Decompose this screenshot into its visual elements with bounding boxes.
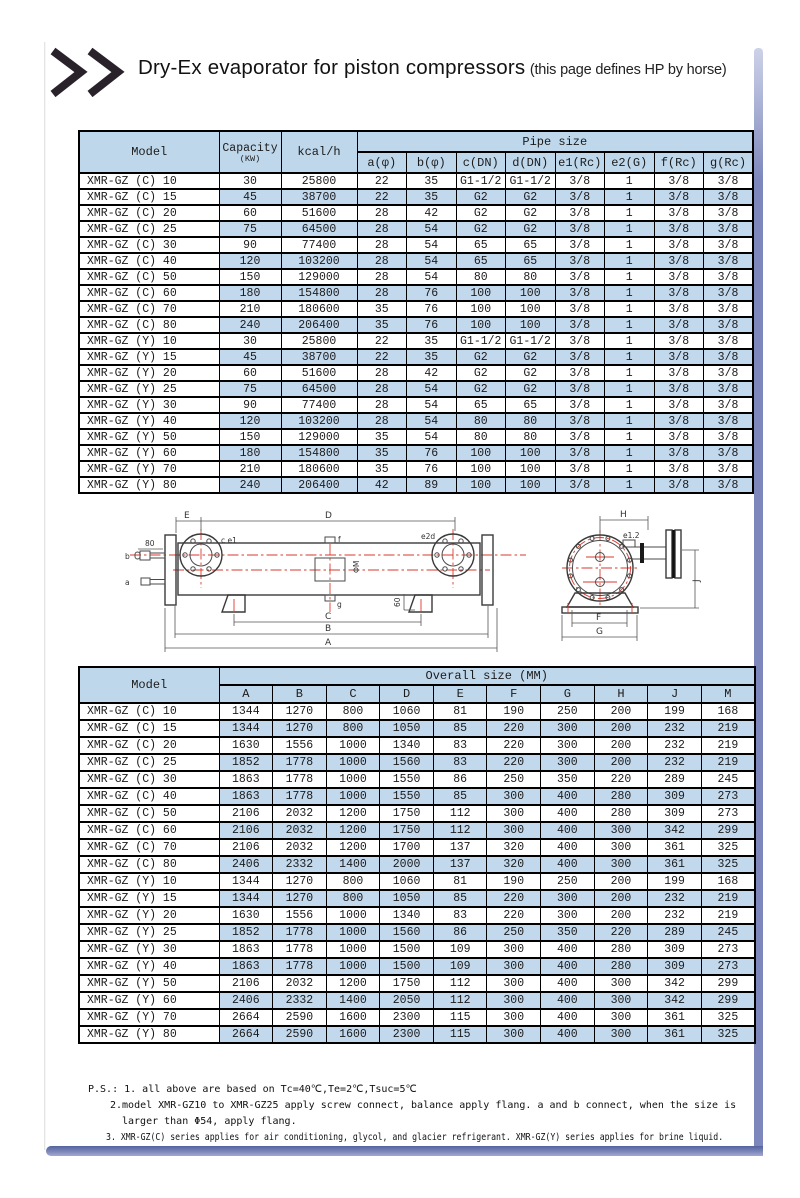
value-cell: 42 xyxy=(407,365,457,381)
value-cell: 325 xyxy=(701,1026,755,1043)
end-view-drawing: H e1.2 J F G xyxy=(562,510,702,641)
value-cell: 100 xyxy=(456,445,506,461)
pipe-size-table: Model Capacity (KW) kcal/h Pipe size a(φ… xyxy=(78,130,754,494)
value-cell: 3/8 xyxy=(704,253,754,269)
value-cell: 1270 xyxy=(273,720,327,737)
value-cell: 320 xyxy=(487,839,541,856)
value-cell: G2 xyxy=(456,365,506,381)
footnote-line-3: larger than Φ54, apply flang. xyxy=(88,1114,800,1130)
value-cell: 112 xyxy=(433,992,487,1009)
model-cell: XMR-GZ (Y) 10 xyxy=(79,333,219,349)
value-cell: 112 xyxy=(433,975,487,992)
value-cell: 220 xyxy=(594,771,648,788)
column-header: A xyxy=(219,685,273,703)
side-view-drawing: E D 80 b a c e1 e2d f g ΦM 60 C B A xyxy=(125,511,526,652)
value-cell: 400 xyxy=(541,1009,595,1026)
value-cell: 30 xyxy=(219,333,281,349)
value-cell: 22 xyxy=(357,189,407,205)
value-cell: 250 xyxy=(541,703,595,720)
value-cell: 200 xyxy=(594,754,648,771)
value-cell: 250 xyxy=(487,924,541,941)
model-cell: XMR-GZ (Y) 20 xyxy=(79,907,219,924)
value-cell: 154800 xyxy=(281,285,357,301)
value-cell: 38700 xyxy=(281,349,357,365)
column-header: E xyxy=(433,685,487,703)
value-cell: 400 xyxy=(541,839,595,856)
value-cell: 54 xyxy=(407,397,457,413)
value-cell: 3/8 xyxy=(555,253,605,269)
model-cell: XMR-GZ (Y) 50 xyxy=(79,429,219,445)
value-cell: 76 xyxy=(407,461,457,477)
value-cell: 232 xyxy=(648,737,702,754)
value-cell: 35 xyxy=(407,333,457,349)
value-cell: 28 xyxy=(357,285,407,301)
dim-label-A: A xyxy=(325,638,332,648)
value-cell: 35 xyxy=(407,173,457,189)
value-cell: 35 xyxy=(357,445,407,461)
pipe-label-a: a xyxy=(125,578,130,587)
value-cell: 1 xyxy=(605,189,655,205)
value-cell: 220 xyxy=(487,890,541,907)
value-cell: 1 xyxy=(605,221,655,237)
value-cell: 3/8 xyxy=(654,429,704,445)
model-cell: XMR-GZ (C) 80 xyxy=(79,856,219,873)
value-cell: 25800 xyxy=(281,333,357,349)
catalog-page: Dry-Ex evaporator for piston compressors… xyxy=(0,0,800,1198)
value-cell: 35 xyxy=(357,461,407,477)
dim-label-E: E xyxy=(184,511,190,521)
value-cell: 240 xyxy=(219,477,281,493)
value-cell: 3/8 xyxy=(555,189,605,205)
value-cell: 2590 xyxy=(273,1009,327,1026)
model-cell: XMR-GZ (Y) 70 xyxy=(79,1009,219,1026)
value-cell: 100 xyxy=(506,285,556,301)
value-cell: 3/8 xyxy=(555,237,605,253)
value-cell: 1000 xyxy=(326,771,380,788)
table-row: XMR-GZ (Y) 50150129000355480803/813/83/8 xyxy=(79,429,753,445)
value-cell: 2106 xyxy=(219,805,273,822)
model-cell: XMR-GZ (C) 20 xyxy=(79,737,219,754)
value-cell: 210 xyxy=(219,301,281,317)
value-cell: 2664 xyxy=(219,1026,273,1043)
value-cell: 1200 xyxy=(326,975,380,992)
model-cell: XMR-GZ (C) 20 xyxy=(79,205,219,221)
value-cell: 3/8 xyxy=(704,445,754,461)
table-row: XMR-GZ (Y) 40186317781000150010930040028… xyxy=(79,958,755,975)
value-cell: 1270 xyxy=(273,890,327,907)
value-cell: 309 xyxy=(648,788,702,805)
value-cell: G2 xyxy=(506,189,556,205)
table-row: XMR-GZ (Y) 70266425901600230011530040030… xyxy=(79,1009,755,1026)
table-row: XMR-GZ (Y) 309077400285465653/813/83/8 xyxy=(79,397,753,413)
value-cell: 35 xyxy=(357,301,407,317)
table-row: XMR-GZ (C) 70210620321200170013732040030… xyxy=(79,839,755,856)
value-cell: 45 xyxy=(219,189,281,205)
model-cell: XMR-GZ (C) 60 xyxy=(79,285,219,301)
column-header: g(Rc) xyxy=(704,152,754,173)
model-cell: XMR-GZ (C) 60 xyxy=(79,822,219,839)
value-cell: 1050 xyxy=(380,720,434,737)
value-cell: 1 xyxy=(605,285,655,301)
value-cell: 1200 xyxy=(326,805,380,822)
value-cell: G1-1/2 xyxy=(456,173,506,189)
value-cell: 3/8 xyxy=(654,253,704,269)
value-cell: 3/8 xyxy=(704,301,754,317)
value-cell: 3/8 xyxy=(704,461,754,477)
footnote-line-4: 3. XMR-GZ(C) series applies for air cond… xyxy=(88,1130,723,1146)
value-cell: 2406 xyxy=(219,992,273,1009)
value-cell: 1863 xyxy=(219,771,273,788)
value-cell: 280 xyxy=(594,805,648,822)
size-table-group-header: Overall size (MM) xyxy=(219,667,755,685)
value-cell: 3/8 xyxy=(654,285,704,301)
table-row: XMR-GZ (C) 50210620321200175011230040028… xyxy=(79,805,755,822)
value-cell: 300 xyxy=(541,907,595,924)
value-cell: 3/8 xyxy=(704,349,754,365)
value-cell: 75 xyxy=(219,381,281,397)
value-cell: 1200 xyxy=(326,839,380,856)
value-cell: 3/8 xyxy=(654,301,704,317)
value-cell: 200 xyxy=(594,907,648,924)
value-cell: 80 xyxy=(506,429,556,445)
value-cell: 1700 xyxy=(380,839,434,856)
value-cell: 1852 xyxy=(219,924,273,941)
value-cell: 3/8 xyxy=(654,317,704,333)
value-cell: 28 xyxy=(357,237,407,253)
value-cell: 300 xyxy=(487,788,541,805)
value-cell: 300 xyxy=(594,975,648,992)
value-cell: 109 xyxy=(433,958,487,975)
value-cell: 220 xyxy=(594,924,648,941)
table-row: XMR-GZ (Y) 50210620321200175011230040030… xyxy=(79,975,755,992)
value-cell: 300 xyxy=(541,737,595,754)
value-cell: 100 xyxy=(456,285,506,301)
table-row: XMR-GZ (C) 80240623321400200013732040030… xyxy=(79,856,755,873)
dim-label-60: 60 xyxy=(393,597,402,607)
value-cell: 219 xyxy=(701,720,755,737)
value-cell: 3/8 xyxy=(704,397,754,413)
value-cell: 250 xyxy=(541,873,595,890)
footnote-line-1: P.S.: 1. all above are based on Tc=40℃,T… xyxy=(88,1082,800,1098)
value-cell: 60 xyxy=(219,365,281,381)
value-cell: 273 xyxy=(701,788,755,805)
value-cell: 1270 xyxy=(273,703,327,720)
value-cell: 1200 xyxy=(326,822,380,839)
value-cell: 1 xyxy=(605,413,655,429)
value-cell: 22 xyxy=(357,333,407,349)
model-cell: XMR-GZ (C) 50 xyxy=(79,805,219,822)
value-cell: 3/8 xyxy=(555,349,605,365)
value-cell: 400 xyxy=(541,958,595,975)
value-cell: 2000 xyxy=(380,856,434,873)
value-cell: 1863 xyxy=(219,788,273,805)
value-cell: 51600 xyxy=(281,205,357,221)
value-cell: 300 xyxy=(487,958,541,975)
value-cell: 280 xyxy=(594,788,648,805)
value-cell: 3/8 xyxy=(654,205,704,221)
value-cell: 2106 xyxy=(219,975,273,992)
value-cell: 1550 xyxy=(380,788,434,805)
value-cell: 206400 xyxy=(281,477,357,493)
value-cell: G2 xyxy=(456,381,506,397)
value-cell: 1 xyxy=(605,397,655,413)
value-cell: 83 xyxy=(433,754,487,771)
value-cell: 1 xyxy=(605,205,655,221)
value-cell: 1400 xyxy=(326,856,380,873)
value-cell: 200 xyxy=(594,890,648,907)
value-cell: 350 xyxy=(541,924,595,941)
table-row: XMR-GZ (C) 20163015561000134083220300200… xyxy=(79,737,755,754)
value-cell: 3/8 xyxy=(654,333,704,349)
value-cell: 38700 xyxy=(281,189,357,205)
value-cell: 180 xyxy=(219,285,281,301)
value-cell: 76 xyxy=(407,445,457,461)
value-cell: 1 xyxy=(605,381,655,397)
page-title-suffix: (this page defines HP by horse) xyxy=(530,62,727,78)
value-cell: 300 xyxy=(594,1026,648,1043)
model-cell: XMR-GZ (C) 80 xyxy=(79,317,219,333)
value-cell: 220 xyxy=(487,907,541,924)
value-cell: 3/8 xyxy=(555,205,605,221)
value-cell: 3/8 xyxy=(555,269,605,285)
value-cell: 2332 xyxy=(273,992,327,1009)
value-cell: 1340 xyxy=(380,737,434,754)
value-cell: 1778 xyxy=(273,924,327,941)
value-cell: 3/8 xyxy=(555,173,605,189)
value-cell: 3/8 xyxy=(704,413,754,429)
value-cell: 206400 xyxy=(281,317,357,333)
footnotes: P.S.: 1. all above are based on Tc=40℃,T… xyxy=(88,1082,800,1146)
value-cell: 219 xyxy=(701,737,755,754)
value-cell: 76 xyxy=(407,317,457,333)
value-cell: 325 xyxy=(701,856,755,873)
value-cell: G2 xyxy=(506,349,556,365)
value-cell: 200 xyxy=(594,873,648,890)
model-cell: XMR-GZ (Y) 30 xyxy=(79,941,219,958)
value-cell: 1550 xyxy=(380,771,434,788)
column-header: c(DN) xyxy=(456,152,506,173)
value-cell: 1000 xyxy=(326,924,380,941)
column-header: J xyxy=(648,685,702,703)
column-header: e2(G) xyxy=(605,152,655,173)
value-cell: 1000 xyxy=(326,958,380,975)
value-cell: 1 xyxy=(605,349,655,365)
value-cell: 64500 xyxy=(281,221,357,237)
value-cell: 76 xyxy=(407,285,457,301)
value-cell: 220 xyxy=(487,737,541,754)
dim-label-C: C xyxy=(325,612,331,622)
value-cell: 3/8 xyxy=(555,381,605,397)
page-title: Dry-Ex evaporator for piston compressors… xyxy=(138,56,727,80)
model-cell: XMR-GZ (Y) 10 xyxy=(79,873,219,890)
value-cell: 1000 xyxy=(326,754,380,771)
value-cell: 400 xyxy=(541,1026,595,1043)
model-cell: XMR-GZ (C) 70 xyxy=(79,301,219,317)
value-cell: 3/8 xyxy=(704,221,754,237)
value-cell: 180 xyxy=(219,445,281,461)
model-cell: XMR-GZ (C) 40 xyxy=(79,788,219,805)
value-cell: 112 xyxy=(433,822,487,839)
table-row: XMR-GZ (Y) 15134412708001050852203002002… xyxy=(79,890,755,907)
value-cell: 150 xyxy=(219,269,281,285)
column-header: B xyxy=(273,685,327,703)
value-cell: 300 xyxy=(541,720,595,737)
value-cell: 129000 xyxy=(281,429,357,445)
model-cell: XMR-GZ (C) 40 xyxy=(79,253,219,269)
value-cell: 1778 xyxy=(273,788,327,805)
value-cell: 3/8 xyxy=(704,173,754,189)
value-cell: 300 xyxy=(594,1009,648,1026)
value-cell: 3/8 xyxy=(654,413,704,429)
value-cell: 361 xyxy=(648,839,702,856)
value-cell: 81 xyxy=(433,873,487,890)
value-cell: 400 xyxy=(541,856,595,873)
value-cell: 800 xyxy=(326,890,380,907)
table-row: XMR-GZ (C) 40120103200285465653/813/83/8 xyxy=(79,253,753,269)
value-cell: G2 xyxy=(506,381,556,397)
value-cell: 3/8 xyxy=(555,333,605,349)
value-cell: 2332 xyxy=(273,856,327,873)
value-cell: 22 xyxy=(357,349,407,365)
table-row: XMR-GZ (Y) 2060516002842G2G23/813/83/8 xyxy=(79,365,753,381)
value-cell: 65 xyxy=(506,253,556,269)
value-cell: 100 xyxy=(506,445,556,461)
model-cell: XMR-GZ (C) 30 xyxy=(79,771,219,788)
value-cell: 100 xyxy=(506,317,556,333)
value-cell: 89 xyxy=(407,477,457,493)
value-cell: 54 xyxy=(407,237,457,253)
table-row: XMR-GZ (Y) 6018015480035761001003/813/83… xyxy=(79,445,753,461)
value-cell: 1 xyxy=(605,269,655,285)
table-row: XMR-GZ (C) 60210620321200175011230040030… xyxy=(79,822,755,839)
value-cell: 300 xyxy=(594,992,648,1009)
value-cell: 168 xyxy=(701,873,755,890)
value-cell: 3/8 xyxy=(704,205,754,221)
value-cell: 112 xyxy=(433,805,487,822)
value-cell: 115 xyxy=(433,1009,487,1026)
value-cell: 3/8 xyxy=(555,365,605,381)
value-cell: 1000 xyxy=(326,788,380,805)
value-cell: 54 xyxy=(407,221,457,237)
value-cell: G2 xyxy=(506,221,556,237)
value-cell: 3/8 xyxy=(654,237,704,253)
value-cell: 1340 xyxy=(380,907,434,924)
value-cell: 400 xyxy=(541,805,595,822)
value-cell: 54 xyxy=(407,413,457,429)
value-cell: 273 xyxy=(701,941,755,958)
value-cell: 320 xyxy=(487,856,541,873)
value-cell: 300 xyxy=(594,822,648,839)
table-row: XMR-GZ (Y) 40120103200285480803/813/83/8 xyxy=(79,413,753,429)
model-cell: XMR-GZ (Y) 25 xyxy=(79,924,219,941)
value-cell: 100 xyxy=(456,317,506,333)
value-cell: 800 xyxy=(326,873,380,890)
value-cell: 1270 xyxy=(273,873,327,890)
model-cell: XMR-GZ (Y) 80 xyxy=(79,1026,219,1043)
model-cell: XMR-GZ (Y) 70 xyxy=(79,461,219,477)
model-cell: XMR-GZ (C) 25 xyxy=(79,221,219,237)
value-cell: 232 xyxy=(648,754,702,771)
column-header: b(φ) xyxy=(407,152,457,173)
value-cell: 54 xyxy=(407,253,457,269)
table-row: XMR-GZ (C) 6018015480028761001003/813/83… xyxy=(79,285,753,301)
value-cell: 1 xyxy=(605,333,655,349)
value-cell: 100 xyxy=(456,461,506,477)
pipe-label-b: b xyxy=(125,552,130,561)
pipe-table-header-kcal: kcal/h xyxy=(281,131,357,173)
value-cell: 100 xyxy=(506,461,556,477)
table-row: XMR-GZ (Y) 20163015561000134083220300200… xyxy=(79,907,755,924)
dim-label-D: D xyxy=(325,511,332,521)
value-cell: 28 xyxy=(357,381,407,397)
value-cell: 90 xyxy=(219,397,281,413)
value-cell: 220 xyxy=(487,720,541,737)
value-cell: 100 xyxy=(456,477,506,493)
value-cell: 3/8 xyxy=(555,445,605,461)
value-cell: 35 xyxy=(357,429,407,445)
dim-label-G: G xyxy=(596,627,603,637)
table-row: XMR-GZ (C) 15134412708001050852203002002… xyxy=(79,720,755,737)
value-cell: 232 xyxy=(648,720,702,737)
value-cell: 1 xyxy=(605,301,655,317)
dim-label-J: J xyxy=(692,579,702,583)
value-cell: 245 xyxy=(701,771,755,788)
value-cell: 1000 xyxy=(326,907,380,924)
value-cell: 1000 xyxy=(326,941,380,958)
label-c-e1: c e1 xyxy=(221,536,237,545)
bottom-accent-bar xyxy=(46,1146,763,1156)
value-cell: 35 xyxy=(357,317,407,333)
value-cell: 80 xyxy=(456,413,506,429)
value-cell: 42 xyxy=(357,477,407,493)
value-cell: 309 xyxy=(648,941,702,958)
value-cell: 28 xyxy=(357,413,407,429)
model-cell: XMR-GZ (Y) 50 xyxy=(79,975,219,992)
table-row: XMR-GZ (C) 1545387002235G2G23/813/83/8 xyxy=(79,189,753,205)
value-cell: 2300 xyxy=(380,1026,434,1043)
value-cell: 54 xyxy=(407,429,457,445)
value-cell: 245 xyxy=(701,924,755,941)
value-cell: 28 xyxy=(357,221,407,237)
value-cell: 342 xyxy=(648,975,702,992)
value-cell: 219 xyxy=(701,890,755,907)
footnote-line-2: 2.model XMR-GZ10 to XMR-GZ25 apply screw… xyxy=(88,1098,800,1114)
value-cell: 300 xyxy=(487,1026,541,1043)
model-cell: XMR-GZ (C) 70 xyxy=(79,839,219,856)
model-cell: XMR-GZ (Y) 30 xyxy=(79,397,219,413)
table-row: XMR-GZ (C) 50150129000285480803/813/83/8 xyxy=(79,269,753,285)
label-f: f xyxy=(338,535,341,544)
label-e2d: e2d xyxy=(421,532,435,541)
value-cell: 190 xyxy=(487,703,541,720)
value-cell: 1750 xyxy=(380,822,434,839)
value-cell: 120 xyxy=(219,413,281,429)
value-cell: 54 xyxy=(407,381,457,397)
value-cell: 3/8 xyxy=(555,413,605,429)
value-cell: 1 xyxy=(605,477,655,493)
value-cell: 80 xyxy=(506,413,556,429)
table-row: XMR-GZ (Y) 30186317781000150010930040028… xyxy=(79,941,755,958)
value-cell: 220 xyxy=(487,754,541,771)
value-cell: 90 xyxy=(219,237,281,253)
model-cell: XMR-GZ (C) 30 xyxy=(79,237,219,253)
value-cell: 400 xyxy=(541,941,595,958)
value-cell: 1750 xyxy=(380,805,434,822)
value-cell: 3/8 xyxy=(654,221,704,237)
value-cell: 3/8 xyxy=(555,461,605,477)
value-cell: 2300 xyxy=(380,1009,434,1026)
dim-label-H: H xyxy=(620,510,627,520)
